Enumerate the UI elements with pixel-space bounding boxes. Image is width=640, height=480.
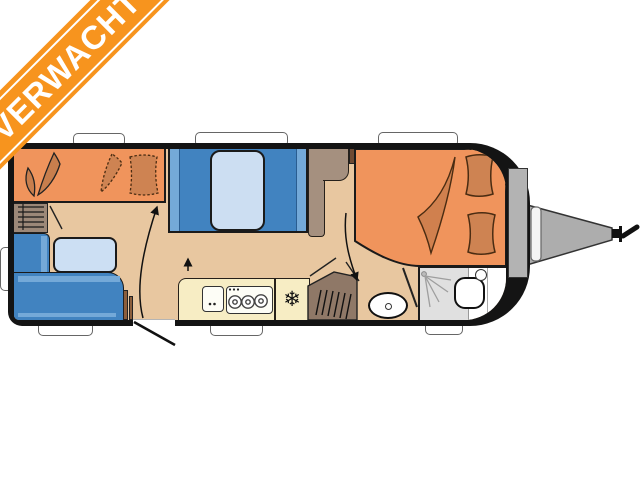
- floorplan-page: ❄ VERWACHT: [0, 0, 640, 480]
- rear-bed-blanket: [418, 157, 455, 253]
- entrance-door-opening: [133, 319, 175, 328]
- cabinet-swing-line-front: [50, 206, 62, 229]
- dinette-table: [53, 237, 117, 273]
- bathroom-divider: [487, 268, 488, 320]
- wardrobe-cabinet: [349, 149, 356, 164]
- bathroom: [418, 266, 506, 320]
- washbasin: [368, 292, 408, 319]
- sofa-cushion-line-2: [18, 276, 120, 282]
- rear-bed-pillow-top: [466, 155, 493, 197]
- heater-hatch-icon: [316, 290, 351, 319]
- jockey-wheel-slot: [531, 207, 541, 261]
- walkway-arrow-bathroom: [345, 213, 357, 280]
- sofa-cushion-line-1: [41, 236, 47, 272]
- washbasin-drain: [385, 303, 392, 310]
- caravan-interior-floor: ❄: [14, 149, 506, 320]
- sofa-cushion-line-3: [18, 313, 116, 317]
- bunk-side-panel-right: [296, 149, 306, 231]
- walkway-arrow-door: [140, 207, 157, 318]
- wardrobe-extension: [323, 149, 349, 181]
- bunk-side-panel-left: [170, 149, 180, 231]
- cabinet-swing-line-2: [346, 262, 359, 281]
- kitchen-stove: [226, 286, 273, 314]
- door-jamb-outer: [123, 290, 128, 320]
- gas-locker-band: [508, 168, 528, 278]
- kitchen-sink: [202, 286, 224, 312]
- bunk-mattress: [210, 150, 265, 231]
- rear-bed: [355, 149, 506, 266]
- door-jamb-inner: [129, 296, 133, 320]
- fridge: [275, 278, 310, 320]
- front-bed: [14, 149, 166, 203]
- heater-front: [14, 203, 48, 233]
- toilet-cistern: [475, 269, 487, 281]
- heater-rear: [308, 272, 357, 320]
- cabinet-swing-line-1: [310, 258, 336, 276]
- drawbar-aframe: [520, 203, 612, 267]
- rear-bed-pillow-bottom: [468, 213, 495, 255]
- hitch-coupling-icon: [612, 226, 637, 242]
- toilet: [454, 277, 485, 309]
